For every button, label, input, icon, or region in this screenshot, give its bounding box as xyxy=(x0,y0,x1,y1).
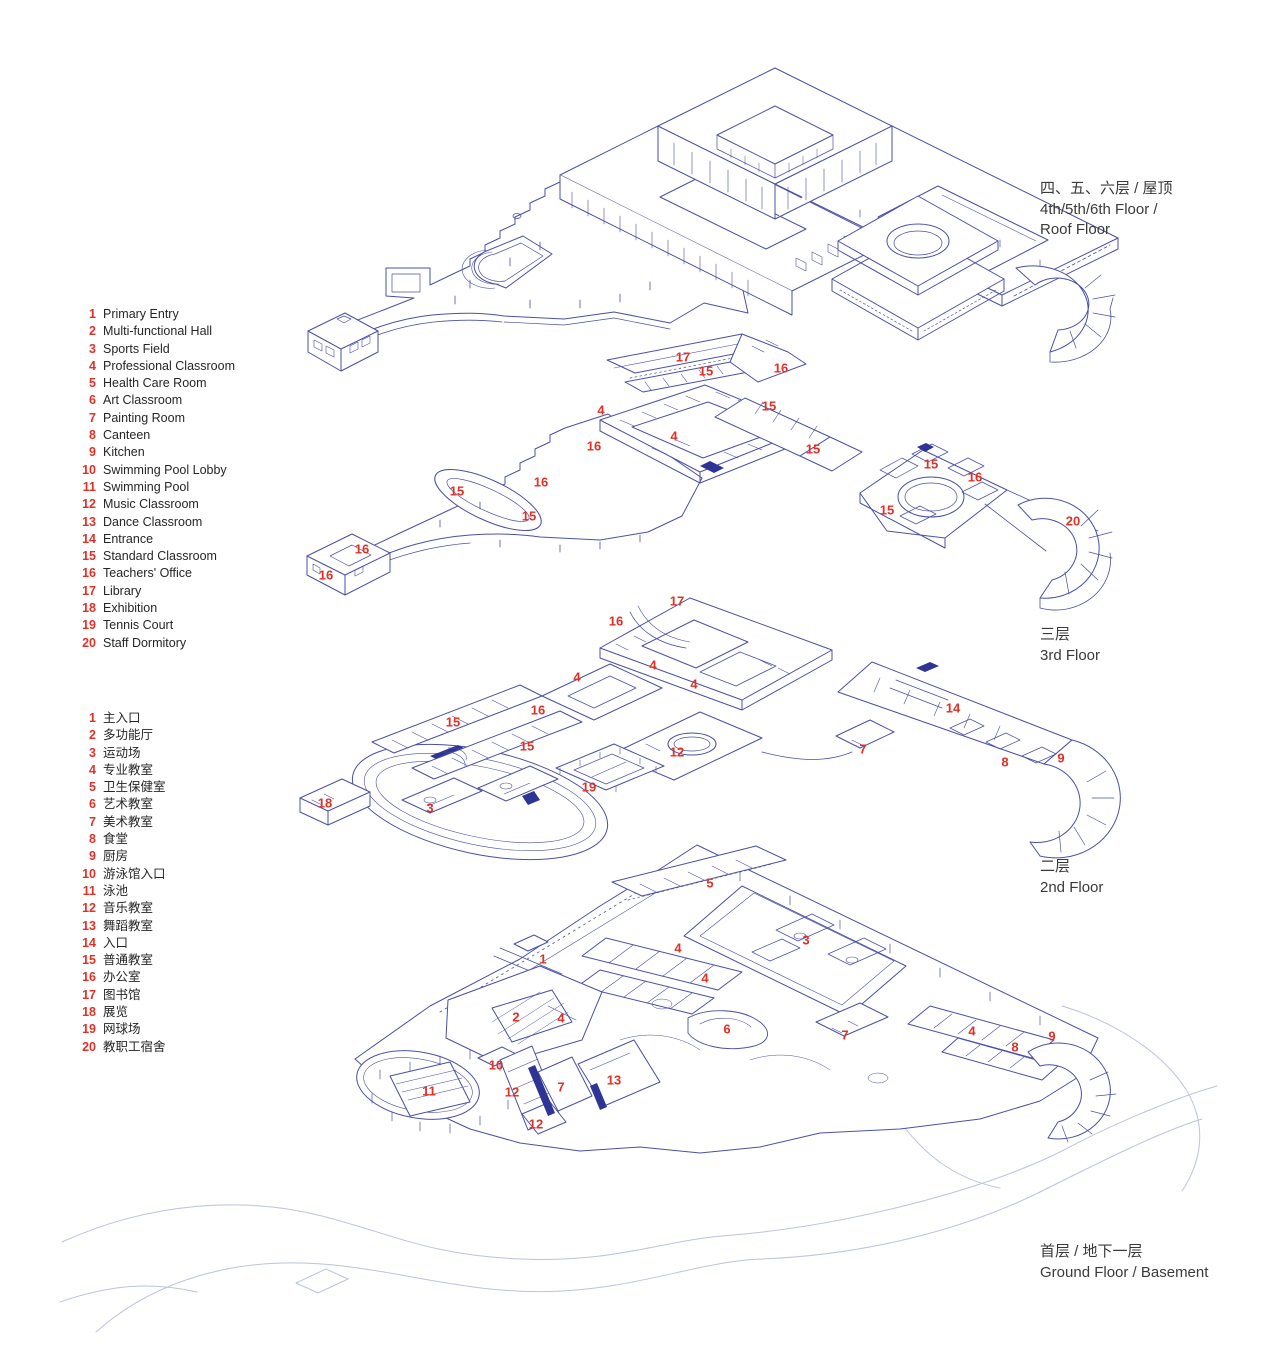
marker-f3-15: 15 xyxy=(924,458,938,471)
legend-item-en-1: 1Primary Entry xyxy=(62,307,302,324)
legend-item-number: 19 xyxy=(62,1022,96,1036)
legend-item-label: Entrance xyxy=(103,532,153,546)
floor-label-3rd-en: 3rd Floor xyxy=(1040,646,1100,666)
roof-floor-drawing xyxy=(308,68,1118,371)
marker-ground-4: 4 xyxy=(701,972,708,985)
legend-item-label: Swimming Pool xyxy=(103,480,189,494)
floor-label-3rd: 三层 3rd Floor xyxy=(1040,625,1100,666)
legend-item-label: 美术教室 xyxy=(103,811,153,830)
marker-f3-16: 16 xyxy=(355,543,369,556)
legend-item-label: Exhibition xyxy=(103,601,157,615)
marker-f2-16: 16 xyxy=(609,615,623,628)
legend-item-cn-12: 12音乐教室 xyxy=(62,897,302,914)
legend-item-cn-13: 13舞蹈教室 xyxy=(62,915,302,932)
legend-item-label: 多功能厅 xyxy=(103,724,153,743)
marker-ground-6: 6 xyxy=(723,1023,730,1036)
legend-item-label: 泳池 xyxy=(103,880,128,899)
legend-item-en-16: 16Teachers' Office xyxy=(62,566,302,583)
legend-item-number: 3 xyxy=(62,342,96,356)
legend-item-en-17: 17Library xyxy=(62,584,302,601)
legend-item-number: 1 xyxy=(62,711,96,725)
legend-item-en-13: 13Dance Classroom xyxy=(62,515,302,532)
marker-f2-15: 15 xyxy=(446,716,460,729)
legend-item-number: 19 xyxy=(62,618,96,632)
marker-f3-16: 16 xyxy=(534,476,548,489)
marker-f3-15: 15 xyxy=(762,400,776,413)
marker-f2-15: 15 xyxy=(520,740,534,753)
legend-item-number: 18 xyxy=(62,601,96,615)
legend-item-cn-15: 15普通教室 xyxy=(62,949,302,966)
legend-item-number: 17 xyxy=(62,988,96,1002)
legend-item-number: 14 xyxy=(62,936,96,950)
legend-item-number: 18 xyxy=(62,1005,96,1019)
legend-item-label: 运动场 xyxy=(103,742,141,761)
legend-item-label: 音乐教室 xyxy=(103,897,153,916)
marker-f3-17: 17 xyxy=(676,351,690,364)
legend-item-en-5: 5Health Care Room xyxy=(62,376,302,393)
legend-item-number: 5 xyxy=(62,376,96,390)
legend-item-number: 3 xyxy=(62,746,96,760)
legend-item-label: Health Care Room xyxy=(103,376,207,390)
floor-label-ground-en: Ground Floor / Basement xyxy=(1040,1263,1208,1283)
marker-ground-3: 3 xyxy=(802,934,809,947)
marker-f3-16: 16 xyxy=(587,440,601,453)
marker-f2-9: 9 xyxy=(1057,752,1064,765)
marker-f3-20: 20 xyxy=(1066,515,1080,528)
legend-item-number: 13 xyxy=(62,515,96,529)
legend-item-label: Tennis Court xyxy=(103,618,173,632)
marker-f2-3: 3 xyxy=(426,802,433,815)
legend-item-cn-3: 3运动场 xyxy=(62,742,302,759)
legend-item-label: Primary Entry xyxy=(103,307,179,321)
marker-ground-9: 9 xyxy=(1048,1030,1055,1043)
legend-item-label: 食堂 xyxy=(103,828,128,847)
legend-item-label: 卫生保健室 xyxy=(103,776,166,795)
legend-item-en-10: 10Swimming Pool Lobby xyxy=(62,463,302,480)
marker-f2-4: 4 xyxy=(573,671,580,684)
legend-item-cn-2: 2多功能厅 xyxy=(62,724,302,741)
legend-item-number: 15 xyxy=(62,549,96,563)
legend-item-label: Standard Classroom xyxy=(103,549,217,563)
marker-f3-4: 4 xyxy=(597,404,604,417)
marker-f3-15: 15 xyxy=(699,365,713,378)
marker-f3-15: 15 xyxy=(880,504,894,517)
legend-item-label: 舞蹈教室 xyxy=(103,915,153,934)
legend-item-number: 1 xyxy=(62,307,96,321)
marker-f3-15: 15 xyxy=(806,443,820,456)
legend-item-en-20: 20Staff Dormitory xyxy=(62,636,302,653)
marker-ground-8: 8 xyxy=(1011,1041,1018,1054)
legend-item-en-11: 11Swimming Pool xyxy=(62,480,302,497)
legend-item-label: Sports Field xyxy=(103,342,170,356)
legend-item-en-9: 9Kitchen xyxy=(62,445,302,462)
marker-f3-16: 16 xyxy=(774,362,788,375)
legend-item-number: 2 xyxy=(62,324,96,338)
legend-item-number: 11 xyxy=(62,480,96,494)
second-floor-drawing xyxy=(300,598,1120,880)
legend-item-number: 7 xyxy=(62,815,96,829)
legend-item-cn-4: 4专业教室 xyxy=(62,759,302,776)
legend-item-label: Painting Room xyxy=(103,411,185,425)
legend-item-en-19: 19Tennis Court xyxy=(62,618,302,635)
legend-item-cn-14: 14入口 xyxy=(62,932,302,949)
legend-item-label: Teachers' Office xyxy=(103,566,192,580)
floor-label-3rd-cn: 三层 xyxy=(1040,625,1100,645)
marker-ground-7: 7 xyxy=(841,1029,848,1042)
floor-label-roof: 四、五、六层 / 屋顶 4th/5th/6th Floor / Roof Flo… xyxy=(1040,179,1173,240)
legend-item-en-4: 4Professional Classroom xyxy=(62,359,302,376)
marker-f2-7: 7 xyxy=(859,743,866,756)
legend-item-number: 8 xyxy=(62,832,96,846)
legend-english: 1Primary Entry2Multi-functional Hall3Spo… xyxy=(62,307,302,653)
marker-f2-16: 16 xyxy=(531,704,545,717)
legend-item-en-12: 12Music Classroom xyxy=(62,497,302,514)
legend-item-number: 11 xyxy=(62,884,96,898)
marker-f2-8: 8 xyxy=(1001,756,1008,769)
legend-item-cn-16: 16办公室 xyxy=(62,966,302,983)
marker-ground-12: 12 xyxy=(505,1086,519,1099)
legend-item-cn-20: 20教职工宿舍 xyxy=(62,1036,302,1053)
legend-item-label: Music Classroom xyxy=(103,497,199,511)
marker-f3-4: 4 xyxy=(670,430,677,443)
marker-f2-17: 17 xyxy=(670,595,684,608)
legend-item-cn-10: 10游泳馆入口 xyxy=(62,863,302,880)
legend-item-number: 14 xyxy=(62,532,96,546)
legend-item-en-3: 3Sports Field xyxy=(62,342,302,359)
legend-item-label: Library xyxy=(103,584,141,598)
legend-item-label: 网球场 xyxy=(103,1018,141,1037)
legend-item-cn-19: 19网球场 xyxy=(62,1018,302,1035)
legend-item-number: 5 xyxy=(62,780,96,794)
legend-item-label: Multi-functional Hall xyxy=(103,324,212,338)
legend-item-en-8: 8Canteen xyxy=(62,428,302,445)
marker-f2-12: 12 xyxy=(670,746,684,759)
legend-item-number: 6 xyxy=(62,393,96,407)
legend-item-label: 专业教室 xyxy=(103,759,153,778)
marker-ground-2: 2 xyxy=(512,1011,519,1024)
marker-ground-10: 10 xyxy=(489,1059,503,1072)
legend-item-number: 17 xyxy=(62,584,96,598)
legend-item-cn-1: 1主入口 xyxy=(62,707,302,724)
marker-f2-14: 14 xyxy=(946,702,960,715)
legend-item-number: 10 xyxy=(62,867,96,881)
legend-item-number: 6 xyxy=(62,797,96,811)
legend-item-number: 13 xyxy=(62,919,96,933)
marker-f2-18: 18 xyxy=(318,797,332,810)
floor-label-roof-en: 4th/5th/6th Floor / Roof Floor xyxy=(1040,200,1173,240)
legend-chinese: 1主入口2多功能厅3运动场4专业教室5卫生保健室6艺术教室7美术教室8食堂9厨房… xyxy=(62,707,302,1053)
floor-label-2nd-cn: 二层 xyxy=(1040,857,1103,877)
legend-item-label: 艺术教室 xyxy=(103,793,153,812)
legend-item-number: 15 xyxy=(62,953,96,967)
floor-label-ground-cn: 首层 / 地下一层 xyxy=(1040,1242,1208,1262)
legend-item-en-6: 6Art Classroom xyxy=(62,393,302,410)
marker-f2-4: 4 xyxy=(690,678,697,691)
legend-item-label: 主入口 xyxy=(103,707,141,726)
legend-item-label: Canteen xyxy=(103,428,150,442)
marker-ground-11: 11 xyxy=(422,1085,436,1098)
floor-label-ground: 首层 / 地下一层 Ground Floor / Basement xyxy=(1040,1242,1208,1283)
exploded-axonometric-diagram: 1Primary Entry2Multi-functional Hall3Spo… xyxy=(0,0,1280,1357)
legend-item-label: 展览 xyxy=(103,1001,128,1020)
legend-item-label: 办公室 xyxy=(103,966,141,985)
legend-item-en-2: 2Multi-functional Hall xyxy=(62,324,302,341)
legend-item-cn-5: 5卫生保健室 xyxy=(62,776,302,793)
legend-item-en-15: 15Standard Classroom xyxy=(62,549,302,566)
marker-f3-16: 16 xyxy=(319,569,333,582)
legend-item-label: Professional Classroom xyxy=(103,359,235,373)
marker-ground-1: 1 xyxy=(539,953,546,966)
marker-ground-5: 5 xyxy=(706,877,713,890)
marker-ground-4: 4 xyxy=(968,1025,975,1038)
legend-item-label: 入口 xyxy=(103,932,128,951)
marker-f3-15: 15 xyxy=(450,485,464,498)
floor-label-2nd-en: 2nd Floor xyxy=(1040,878,1103,898)
legend-item-number: 9 xyxy=(62,445,96,459)
legend-item-label: 游泳馆入口 xyxy=(103,863,166,882)
floor-label-2nd: 二层 2nd Floor xyxy=(1040,857,1103,898)
marker-ground-13: 13 xyxy=(607,1074,621,1087)
marker-f2-19: 19 xyxy=(582,781,596,794)
legend-item-number: 10 xyxy=(62,463,96,477)
legend-item-label: Kitchen xyxy=(103,445,145,459)
legend-item-cn-8: 8食堂 xyxy=(62,828,302,845)
marker-f3-15: 15 xyxy=(522,510,536,523)
legend-item-cn-11: 11泳池 xyxy=(62,880,302,897)
legend-item-label: Art Classroom xyxy=(103,393,182,407)
floor-label-roof-cn: 四、五、六层 / 屋顶 xyxy=(1040,179,1173,199)
legend-item-number: 20 xyxy=(62,636,96,650)
legend-item-number: 2 xyxy=(62,728,96,742)
legend-item-label: 普通教室 xyxy=(103,949,153,968)
legend-item-number: 9 xyxy=(62,849,96,863)
legend-item-cn-6: 6艺术教室 xyxy=(62,793,302,810)
legend-item-en-7: 7Painting Room xyxy=(62,411,302,428)
legend-item-cn-17: 17图书馆 xyxy=(62,984,302,1001)
legend-item-en-18: 18Exhibition xyxy=(62,601,302,618)
legend-item-en-14: 14Entrance xyxy=(62,532,302,549)
legend-item-label: Dance Classroom xyxy=(103,515,202,529)
legend-item-number: 4 xyxy=(62,763,96,777)
marker-ground-4: 4 xyxy=(674,942,681,955)
legend-item-cn-9: 9厨房 xyxy=(62,845,302,862)
legend-item-number: 16 xyxy=(62,970,96,984)
marker-ground-7: 7 xyxy=(557,1081,564,1094)
marker-ground-4: 4 xyxy=(557,1012,564,1025)
legend-item-number: 20 xyxy=(62,1040,96,1054)
legend-item-cn-18: 18展览 xyxy=(62,1001,302,1018)
marker-f3-16: 16 xyxy=(968,471,982,484)
legend-item-label: 图书馆 xyxy=(103,984,141,1003)
legend-item-label: Swimming Pool Lobby xyxy=(103,463,227,477)
legend-item-label: Staff Dormitory xyxy=(103,636,186,650)
legend-item-number: 12 xyxy=(62,497,96,511)
marker-f2-4: 4 xyxy=(649,659,656,672)
legend-item-cn-7: 7美术教室 xyxy=(62,811,302,828)
legend-item-number: 4 xyxy=(62,359,96,373)
legend-item-number: 16 xyxy=(62,566,96,580)
marker-ground-12: 12 xyxy=(529,1118,543,1131)
legend-item-number: 8 xyxy=(62,428,96,442)
legend-item-label: 厨房 xyxy=(103,845,128,864)
legend-item-label: 教职工宿舍 xyxy=(103,1036,166,1055)
legend-item-number: 12 xyxy=(62,901,96,915)
legend-item-number: 7 xyxy=(62,411,96,425)
